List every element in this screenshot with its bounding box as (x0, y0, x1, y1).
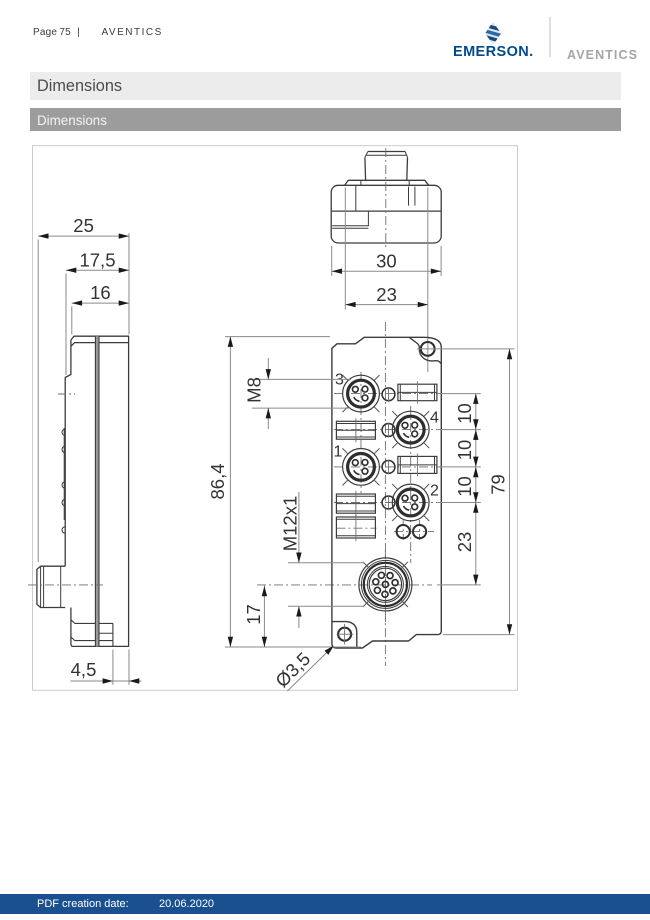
svg-text:23: 23 (376, 284, 397, 305)
svg-text:2: 2 (430, 483, 439, 500)
svg-text:10: 10 (454, 476, 475, 497)
svg-text:10: 10 (454, 440, 475, 461)
svg-text:23: 23 (454, 532, 475, 553)
svg-text:30: 30 (376, 251, 397, 272)
svg-text:79: 79 (487, 474, 508, 495)
svg-text:17,5: 17,5 (79, 249, 115, 270)
svg-text:3: 3 (335, 372, 344, 389)
svg-text:Ø3,5: Ø3,5 (271, 648, 314, 691)
svg-text:16: 16 (90, 282, 111, 303)
svg-text:86,4: 86,4 (207, 463, 228, 499)
svg-text:4,5: 4,5 (71, 659, 97, 680)
svg-text:M12x1: M12x1 (279, 496, 300, 552)
svg-text:17: 17 (243, 604, 264, 625)
svg-text:10: 10 (454, 403, 475, 424)
svg-text:M8: M8 (244, 377, 265, 403)
svg-text:4: 4 (430, 410, 439, 427)
svg-text:1: 1 (334, 444, 343, 461)
svg-text:25: 25 (73, 215, 94, 236)
